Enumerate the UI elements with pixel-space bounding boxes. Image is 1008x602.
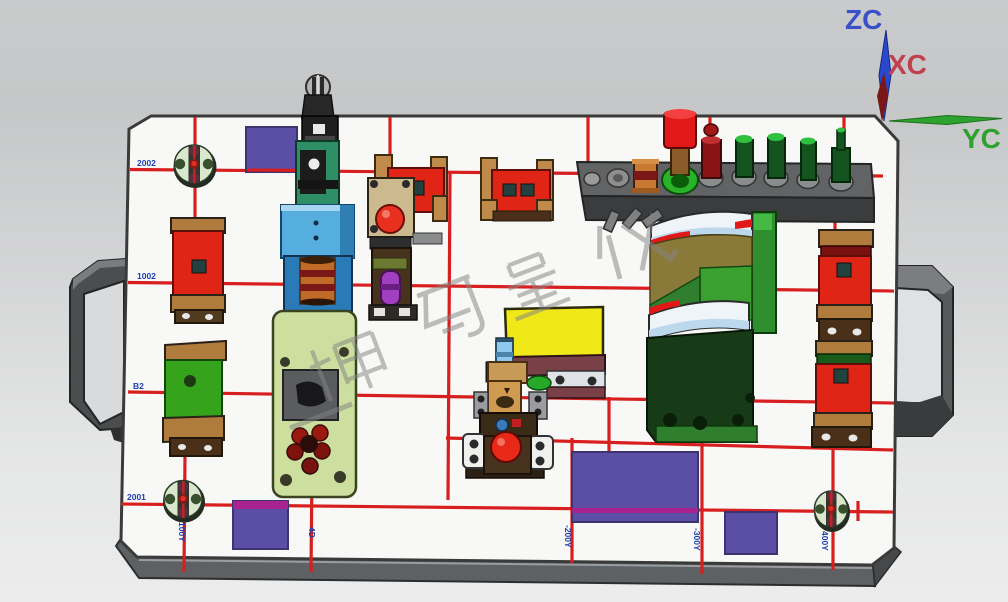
svg-text:ZC: ZC — [845, 4, 882, 35]
svg-text:100Y: 100Y — [177, 522, 187, 542]
svg-text:2001: 2001 — [127, 492, 146, 502]
svg-text:YC: YC — [962, 123, 1001, 154]
svg-text:B2: B2 — [133, 381, 144, 391]
svg-text:400Y: 400Y — [820, 531, 830, 551]
svg-text:-200Y: -200Y — [563, 525, 573, 548]
svg-text:-300Y: -300Y — [692, 528, 702, 551]
svg-text:2002: 2002 — [137, 158, 156, 168]
svg-text:1002: 1002 — [137, 271, 156, 281]
svg-text:4D: 4D — [307, 527, 317, 538]
svg-text:XC: XC — [888, 49, 927, 80]
